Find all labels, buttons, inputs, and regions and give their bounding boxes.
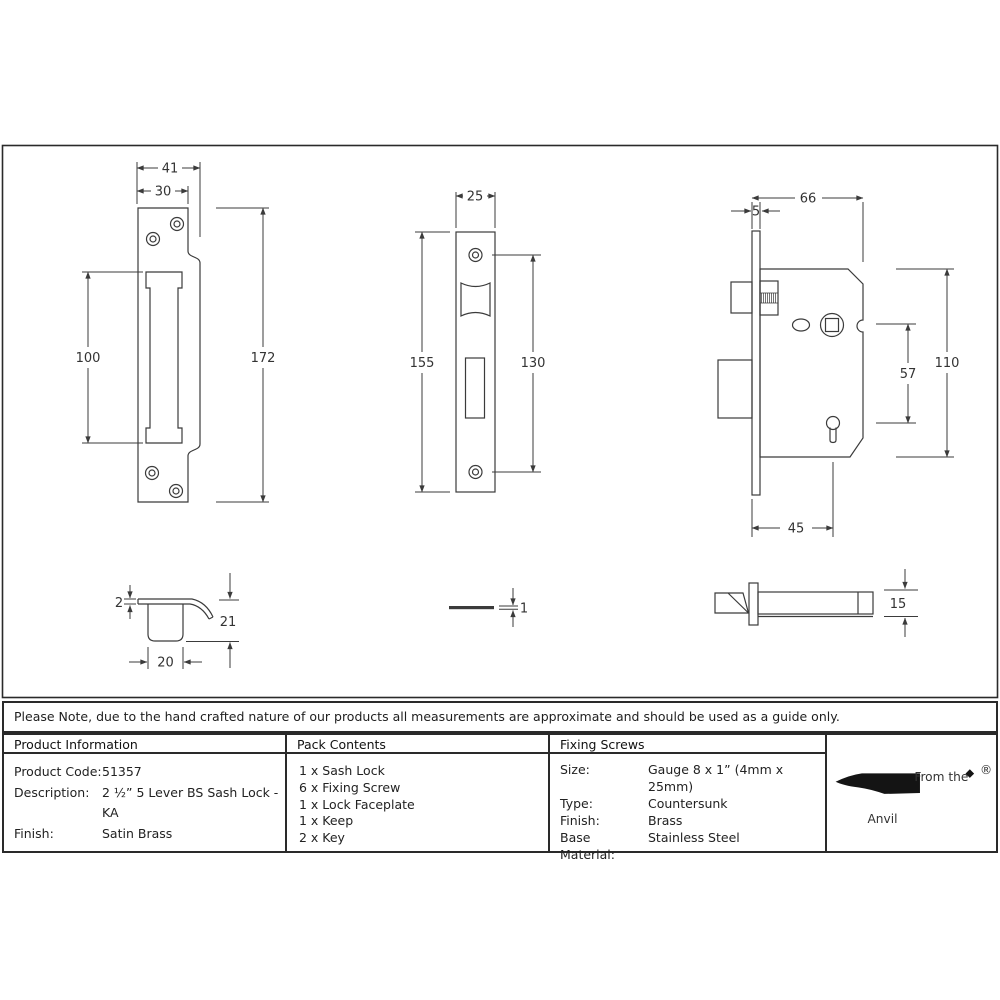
dim-label-20: 20	[157, 656, 174, 671]
fixing-screws-column: Fixing Screws Size: Gauge 8 x 1” (4mm x …	[550, 735, 827, 851]
dim-label-15: 15	[890, 597, 907, 612]
table-row: Finish: Brass	[560, 812, 825, 829]
latch-spring	[760, 293, 778, 303]
technical-drawings: 41 30 100 172 25 155	[0, 0, 1000, 700]
row-label: Size:	[560, 761, 648, 795]
row-label: Finish:	[14, 824, 102, 845]
list-item: 6 x Fixing Screw	[299, 780, 548, 797]
dim-label-172: 172	[251, 351, 276, 366]
dim-label-100: 100	[76, 351, 101, 366]
oval-hole	[793, 319, 810, 331]
dim-label-2: 2	[115, 596, 123, 611]
logo-tagline: From the	[914, 770, 968, 784]
dim-label-57: 57	[900, 367, 917, 382]
list-item: 2 x Key	[299, 830, 548, 847]
from-the-anvil-logo: Anvil From the ®	[830, 754, 994, 832]
fixing-screws-header: Fixing Screws	[550, 735, 825, 754]
logo-name: Anvil	[867, 812, 897, 826]
row-label: Finish:	[560, 812, 648, 829]
keep-side-view: 2 21 20	[115, 573, 239, 671]
registered-mark: ®	[979, 763, 991, 777]
bolt-cutout	[466, 358, 485, 418]
dim-label-30: 30	[155, 185, 172, 200]
row-value: Brass	[648, 812, 682, 829]
lock-side-view: 66 5 110 57 45	[718, 192, 959, 538]
anvil-icon	[835, 773, 919, 794]
note-text: Please Note, due to the hand crafted nat…	[14, 709, 840, 724]
dim-label-110: 110	[935, 356, 960, 371]
row-value: 2 ½” 5 Lever BS Sash Lock - KA	[102, 783, 285, 824]
dim-label-5: 5	[752, 205, 760, 220]
spindle-follower	[821, 314, 844, 337]
dim-label-45: 45	[788, 522, 805, 537]
latch-bolt	[731, 282, 752, 313]
keyhole	[827, 417, 840, 443]
spec-sheet: 41 30 100 172 25 155	[0, 0, 1000, 1000]
dim-label-41: 41	[162, 162, 179, 177]
list-item: 1 x Lock Faceplate	[299, 797, 548, 814]
measurement-note: Please Note, due to the hand crafted nat…	[2, 701, 998, 733]
row-label: Description:	[14, 783, 102, 824]
brand-logo-cell: Anvil From the ®	[827, 735, 996, 851]
table-row: Size: Gauge 8 x 1” (4mm x 25mm)	[560, 761, 825, 795]
table-row: Product Code: 51357	[14, 762, 285, 783]
faceplate-edge	[752, 231, 760, 495]
row-value: Gauge 8 x 1” (4mm x 25mm)	[648, 761, 825, 795]
faceplate-front-view: 25 155 130	[410, 190, 546, 493]
product-information-column: Product Information Product Code: 51357 …	[4, 735, 287, 851]
product-info-table: Product Information Product Code: 51357 …	[2, 733, 998, 853]
dead-bolt	[718, 360, 752, 418]
row-label: Type:	[560, 795, 648, 812]
list-item: 1 x Keep	[299, 813, 548, 830]
dim-label-25: 25	[467, 190, 484, 205]
row-value: Satin Brass	[102, 824, 172, 845]
row-value: Countersunk	[648, 795, 728, 812]
table-row: Type: Countersunk	[560, 795, 825, 812]
pack-contents-column: Pack Contents 1 x Sash Lock 6 x Fixing S…	[287, 735, 550, 851]
table-row: Finish: Satin Brass	[14, 824, 285, 845]
lock-top-view: 15	[715, 569, 918, 637]
keep-front-view: 41 30 100 172	[76, 162, 276, 503]
dim-label-155: 155	[410, 356, 435, 371]
dim-label-21: 21	[220, 615, 237, 630]
drawing-area-border	[3, 146, 998, 698]
latch-cutout	[461, 283, 490, 316]
row-value: 51357	[102, 762, 142, 783]
row-label: Base Material:	[560, 829, 648, 863]
row-value: Stainless Steel	[648, 829, 740, 863]
table-row: Base Material: Stainless Steel	[560, 829, 825, 863]
dim-label-1: 1	[520, 602, 528, 617]
dim-label-130: 130	[521, 356, 546, 371]
pack-contents-header: Pack Contents	[287, 735, 548, 754]
product-information-header: Product Information	[4, 735, 285, 754]
table-row: Description: 2 ½” 5 Lever BS Sash Lock -…	[14, 783, 285, 824]
dim-label-66: 66	[800, 192, 817, 207]
row-label: Product Code:	[14, 762, 102, 783]
faceplate-side-view: 1	[449, 588, 528, 627]
list-item: 1 x Sash Lock	[299, 763, 548, 780]
